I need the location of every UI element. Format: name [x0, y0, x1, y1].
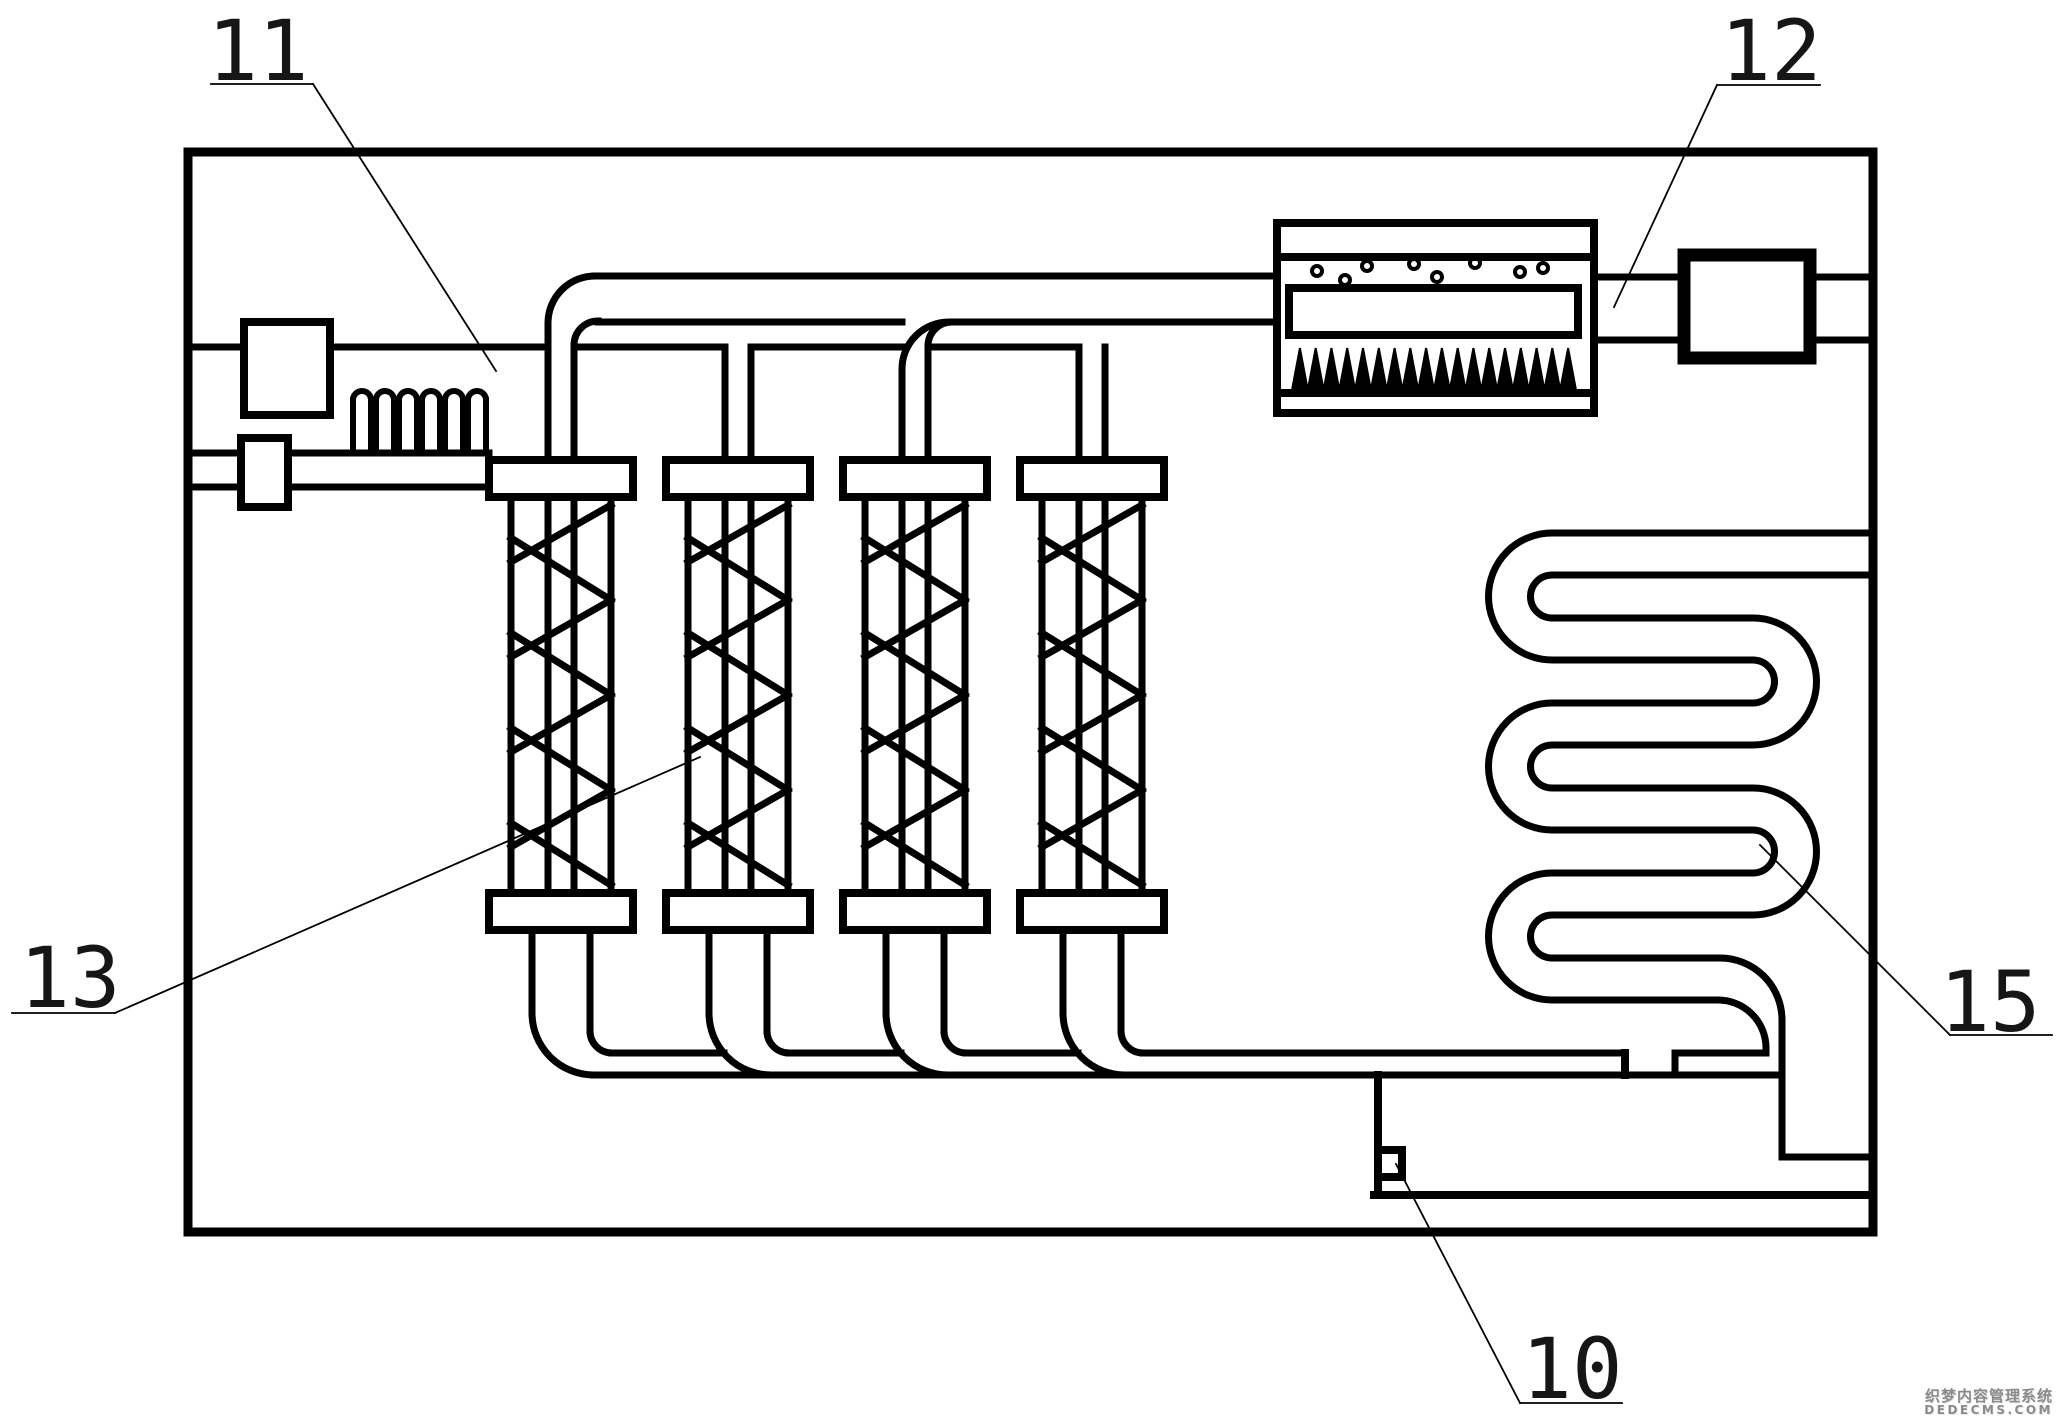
outlet-pump-unit — [1594, 255, 1869, 358]
column3-riser-elbow — [902, 322, 952, 460]
bubble-dot — [1312, 266, 1322, 276]
watermark-line1: 织梦内容管理系统 — [1924, 1389, 2053, 1405]
label-10-leader — [1396, 1164, 1520, 1403]
column-drain-elbow — [1063, 1013, 1143, 1075]
reference-labels: 11 12 13 15 10 — [12, 2, 2052, 1418]
inlet-valve-small — [241, 438, 288, 507]
column-bottom-flange — [666, 893, 810, 930]
screw-columns — [489, 460, 1164, 1075]
column-center-tube — [548, 497, 574, 893]
sensor-10 — [1378, 1150, 1402, 1177]
heater-coil-loops — [353, 391, 486, 451]
column-bottom-flange — [843, 893, 987, 930]
column-drain-stub — [532, 930, 590, 1031]
column-top-flange — [489, 460, 633, 497]
bubble-dot — [1470, 258, 1480, 268]
label-11: 11 — [207, 2, 496, 371]
bubble-dot — [1432, 272, 1442, 282]
bubble-dot — [1515, 267, 1525, 277]
enclosure-border — [188, 152, 1873, 1232]
screw-column-2 — [666, 460, 810, 1075]
collector-lines — [594, 1053, 1675, 1075]
burner-spikes — [1292, 348, 1576, 390]
bubble-dot — [1409, 259, 1419, 269]
patent-diagram-canvas: 11 12 13 15 10 织梦内容管理系统 DEDECMS.COM — [0, 0, 2059, 1421]
bubble-dot — [1362, 261, 1372, 271]
watermark-line2: DEDECMS.COM — [1924, 1404, 2053, 1417]
inlet-valve-block — [244, 322, 330, 415]
column-screw-spiral — [511, 505, 611, 885]
column-top-flange — [666, 460, 810, 497]
label-15: 15 — [1760, 845, 2052, 1051]
degasser-unit-12 — [1277, 223, 1594, 413]
bottom-collector — [594, 1053, 1675, 1075]
heater-coil-element — [353, 391, 486, 451]
column-drain-stub — [709, 930, 767, 1031]
label-11-leader — [313, 84, 496, 371]
column2-riser — [725, 347, 751, 460]
column-center-tube — [1079, 497, 1105, 893]
label-15-text: 15 — [1939, 953, 2040, 1051]
drain-box — [1374, 1075, 1869, 1195]
label-10: 10 — [1396, 1164, 1623, 1418]
column-drain-stub — [1063, 930, 1121, 1031]
column-center-tube — [725, 497, 751, 893]
column-top-flange — [843, 460, 987, 497]
outlet-pipes — [1594, 277, 1869, 340]
column-bottom-flange — [489, 893, 633, 930]
bubble-dot — [1538, 263, 1548, 273]
column4-riser — [1079, 347, 1105, 460]
coil-boundary-a — [1489, 533, 1870, 1157]
column-screw-spiral — [1042, 505, 1142, 885]
bubble-dots — [1312, 258, 1548, 285]
bubble-dot — [1340, 275, 1350, 285]
column-top-flange — [1020, 460, 1164, 497]
top-header-pipes — [548, 276, 1277, 460]
label-15-leader — [1760, 845, 1950, 1035]
diagram-svg: 11 12 13 15 10 — [0, 0, 2059, 1421]
screw-column-1 — [489, 460, 633, 1075]
degasser-inner-plate — [1289, 288, 1578, 335]
column-screw-spiral — [688, 505, 788, 885]
column-screw-spiral — [865, 505, 965, 885]
column1-riser-elbow — [548, 276, 598, 460]
column-center-tube — [902, 497, 928, 893]
watermark: 织梦内容管理系统 DEDECMS.COM — [1924, 1389, 2053, 1417]
pump-block — [1684, 255, 1810, 358]
column-drain-stub — [886, 930, 944, 1031]
column-drain-elbow — [886, 1013, 966, 1075]
screw-column-4 — [1020, 460, 1164, 1075]
column-drain-elbow — [709, 1013, 789, 1075]
column-drain-elbow — [532, 1013, 612, 1075]
label-11-text: 11 — [207, 2, 308, 100]
screw-column-3 — [843, 460, 987, 1075]
serpentine-coil-15 — [1489, 533, 1870, 1157]
column-bottom-flange — [1020, 893, 1164, 930]
